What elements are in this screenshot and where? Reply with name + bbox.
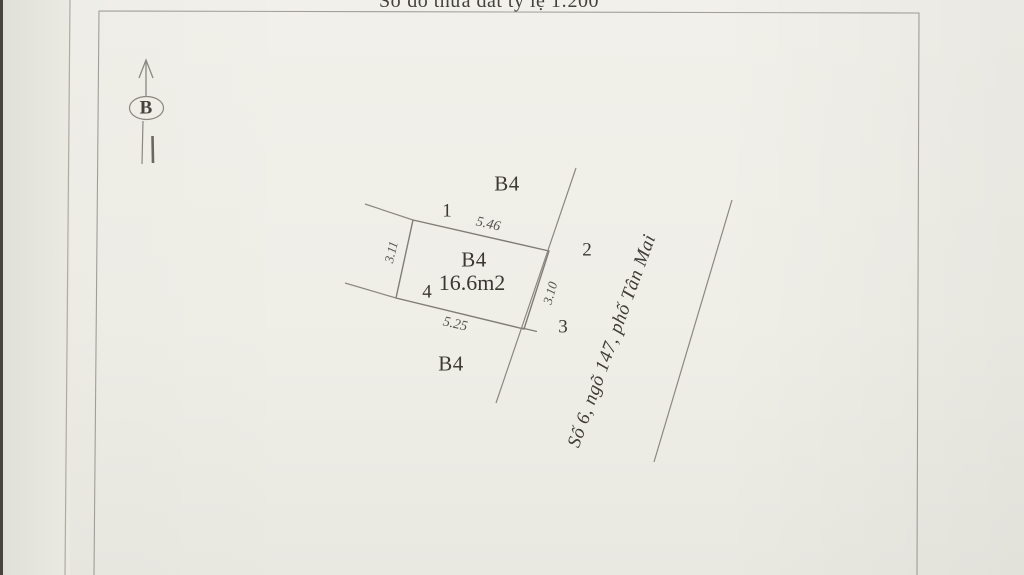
road-edge-near — [496, 168, 576, 403]
sheet-title: Sơ đồ thửa đất tỷ lệ 1:200 — [379, 0, 599, 11]
frame-border — [94, 11, 919, 575]
boundary-extension-bottom — [345, 283, 396, 298]
north-arrow-tail-line — [142, 121, 143, 164]
corner-label-2: 2 — [582, 241, 592, 260]
scanned-cadastral-sheet: Sơ đồ thửa đất tỷ lệ 1:200 B 1 2 3 4 5.4… — [0, 0, 1024, 575]
road-edge-far — [654, 200, 732, 462]
parcel-area: 16.6m2 — [439, 272, 506, 294]
parcel-name: B4 — [461, 250, 487, 271]
corner-label-1: 1 — [442, 202, 452, 221]
paper-fold-line — [65, 0, 70, 575]
north-arrow-tail-bar — [153, 136, 154, 163]
corner-label-4: 4 — [422, 283, 432, 302]
corner-label-3: 3 — [558, 318, 568, 337]
survey-drawing — [0, 0, 1024, 575]
north-label: B — [140, 99, 153, 118]
adjacent-parcel-label-south: B4 — [438, 354, 464, 375]
boundary-extension-top — [365, 204, 413, 220]
adjacent-parcel-label-north: B4 — [494, 174, 520, 195]
